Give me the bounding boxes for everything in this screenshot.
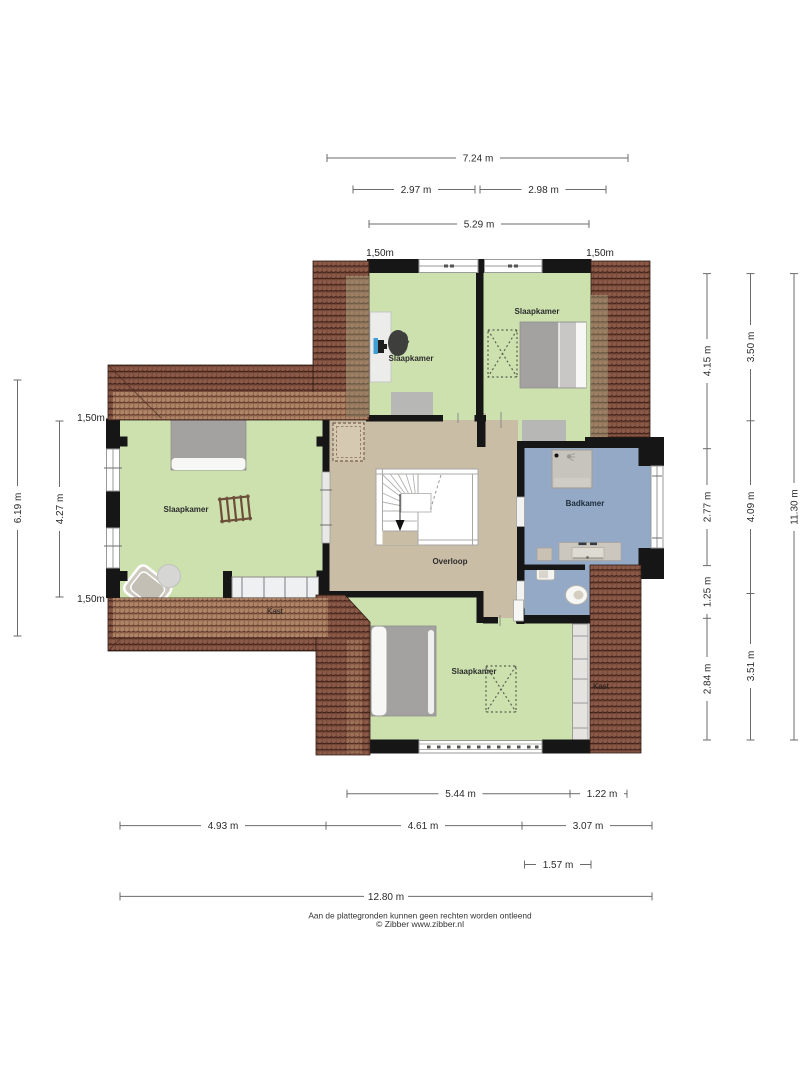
svg-text:7.24 m: 7.24 m <box>463 154 494 165</box>
svg-text:1.25 m: 1.25 m <box>703 577 714 608</box>
svg-text:12.80 m: 12.80 m <box>368 892 404 903</box>
svg-text:Slaapkamer: Slaapkamer <box>389 354 434 363</box>
svg-text:5.29 m: 5.29 m <box>464 220 495 231</box>
svg-text:1,50m: 1,50m <box>77 594 105 605</box>
svg-text:4.61 m: 4.61 m <box>408 821 439 832</box>
svg-text:4.93 m: 4.93 m <box>208 821 239 832</box>
svg-text:Kast: Kast <box>267 607 284 616</box>
svg-text:1.57 m: 1.57 m <box>543 860 574 871</box>
svg-text:2.97 m: 2.97 m <box>401 185 432 196</box>
svg-text:5.44 m: 5.44 m <box>445 789 476 800</box>
svg-text:3.07 m: 3.07 m <box>573 821 604 832</box>
svg-text:1.22 m: 1.22 m <box>587 789 618 800</box>
svg-text:2.98 m: 2.98 m <box>528 185 559 196</box>
svg-text:Kast: Kast <box>593 682 610 691</box>
svg-text:Overloop: Overloop <box>432 557 467 566</box>
svg-text:11.30 m: 11.30 m <box>790 489 801 524</box>
svg-text:6.19 m: 6.19 m <box>13 493 24 524</box>
svg-text:3.51 m: 3.51 m <box>746 651 757 682</box>
svg-text:4.09 m: 4.09 m <box>746 492 757 523</box>
svg-text:1,50m: 1,50m <box>366 248 394 259</box>
svg-text:3.50 m: 3.50 m <box>746 332 757 363</box>
svg-text:2.77 m: 2.77 m <box>703 492 714 523</box>
svg-text:1,50m: 1,50m <box>77 413 105 424</box>
svg-text:2.84 m: 2.84 m <box>703 664 714 695</box>
svg-text:Badkamer: Badkamer <box>566 499 605 508</box>
svg-text:Slaapkamer: Slaapkamer <box>164 505 209 514</box>
svg-text:1,50m: 1,50m <box>586 248 614 259</box>
svg-text:Slaapkamer: Slaapkamer <box>452 667 497 676</box>
svg-text:Slaapkamer: Slaapkamer <box>515 307 560 316</box>
svg-text:4.27 m: 4.27 m <box>55 494 66 525</box>
svg-text:4.15 m: 4.15 m <box>703 346 714 377</box>
svg-text:© Zibber www.zibber.nl: © Zibber www.zibber.nl <box>376 919 464 929</box>
